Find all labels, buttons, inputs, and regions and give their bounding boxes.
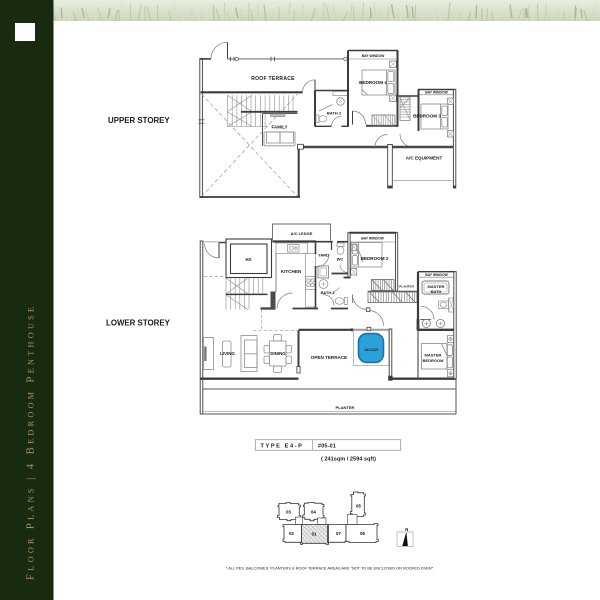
svg-text:DINING: DINING	[270, 351, 286, 356]
svg-text:BEDROOM 4: BEDROOM 4	[359, 80, 387, 85]
svg-text:HS: HS	[246, 257, 252, 262]
svg-text:BAY WINDOW: BAY WINDOW	[362, 54, 385, 58]
svg-text:WC: WC	[337, 257, 344, 262]
svg-text:KITCHEN: KITCHEN	[281, 269, 302, 274]
svg-text:* ALL PES, BALCONIES, PLANTERS: * ALL PES, BALCONIES, PLANTERS & ROOF TE…	[226, 565, 434, 570]
svg-text:01: 01	[312, 531, 317, 536]
svg-text:BAY WINDOW: BAY WINDOW	[425, 273, 448, 277]
svg-text:05: 05	[356, 504, 361, 509]
svg-text:A/C EQUIPMENT: A/C EQUIPMENT	[406, 156, 443, 161]
svg-text:ROOF TERRACE: ROOF TERRACE	[251, 76, 295, 82]
svg-text:07: 07	[336, 531, 341, 536]
svg-text:JACUZZI: JACUZZI	[364, 348, 378, 352]
svg-text:N: N	[405, 527, 408, 532]
svg-text:BEDROOM 3: BEDROOM 3	[413, 114, 441, 119]
svg-text:BAY WINDOW: BAY WINDOW	[361, 236, 384, 240]
svg-text:YARD: YARD	[318, 253, 329, 258]
svg-text:PLANTER: PLANTER	[399, 285, 414, 289]
svg-text:OPEN TERRACE: OPEN TERRACE	[311, 355, 348, 360]
svg-text:FLOOR PLANS | 4 BEDROOM PENTHO: FLOOR PLANS | 4 BEDROOM PENTHOUSE	[25, 304, 37, 580]
svg-text:LIVING: LIVING	[220, 351, 235, 356]
svg-text:TYPE E4-P: TYPE E4-P	[261, 444, 304, 450]
svg-text:02: 02	[289, 531, 294, 536]
svg-text:UPPER STOREY: UPPER STOREY	[108, 116, 170, 125]
svg-text:FAMILY: FAMILY	[271, 125, 287, 130]
svg-text:BAY WINDOW: BAY WINDOW	[425, 91, 448, 95]
svg-text:BEDROOM: BEDROOM	[423, 358, 445, 363]
svg-text:BEDROOM 2: BEDROOM 2	[361, 256, 389, 261]
svg-text:MASTER: MASTER	[425, 353, 442, 358]
svg-text:04: 04	[311, 510, 316, 515]
svg-text:( 241sqm / 2594 sqft): ( 241sqm / 2594 sqft)	[321, 457, 376, 463]
svg-text:PLANTER: PLANTER	[336, 405, 355, 410]
svg-text:LOWER STOREY: LOWER STOREY	[106, 319, 171, 328]
svg-text:BATH 2: BATH 2	[327, 110, 342, 115]
svg-text:06: 06	[360, 531, 365, 536]
svg-text:#05-01: #05-01	[318, 444, 336, 450]
svg-text:BATH: BATH	[431, 289, 442, 294]
svg-text:03: 03	[286, 510, 291, 515]
svg-text:A/C LEDGE: A/C LEDGE	[291, 231, 313, 236]
svg-text:BATH 1: BATH 1	[321, 290, 336, 295]
